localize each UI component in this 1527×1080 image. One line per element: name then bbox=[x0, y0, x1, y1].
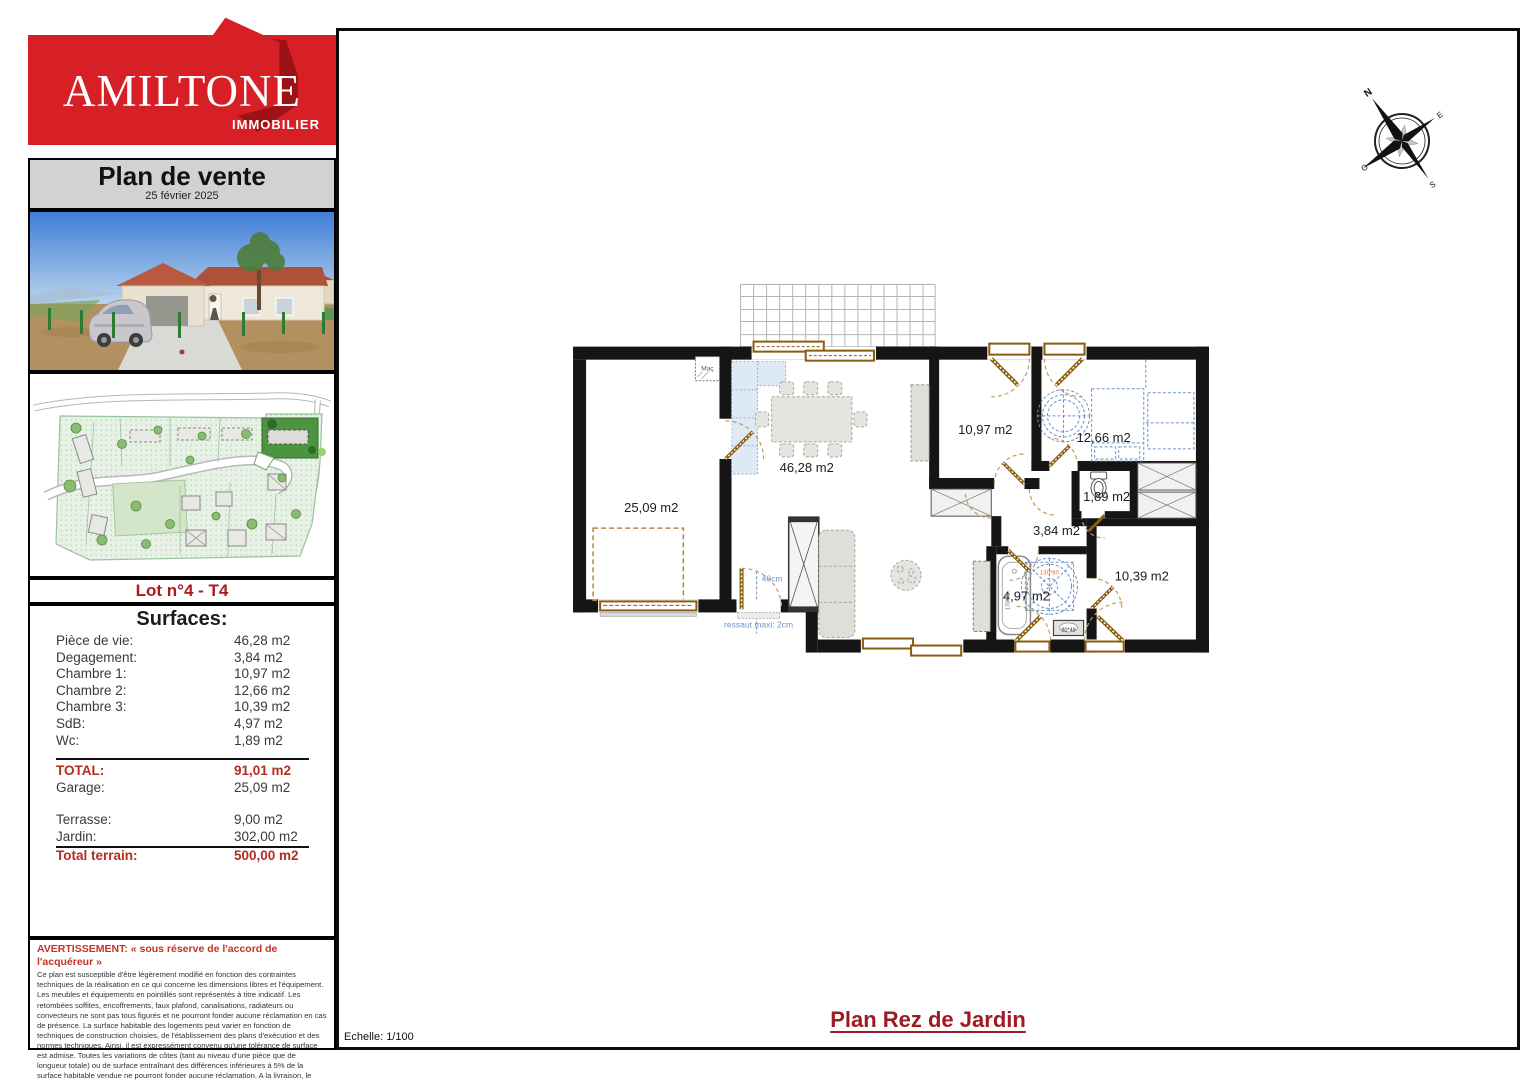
label-seuil: 40cm bbox=[762, 573, 783, 583]
label-degagement: 3,84 m2 bbox=[1033, 523, 1080, 538]
label-chambre1: 10,97 m2 bbox=[958, 422, 1012, 437]
surface-label: SdB: bbox=[56, 716, 234, 733]
label-piece-de-vie: 46,28 m2 bbox=[780, 460, 834, 475]
surface-label: Chambre 2: bbox=[56, 683, 234, 700]
label-chambre2: 12,66 m2 bbox=[1077, 430, 1131, 445]
floor-plan-drawing: 25,09 m2 46,28 m2 10,97 m2 12,66 m2 1,89… bbox=[560, 270, 1222, 672]
disclaimer-title: AVERTISSEMENT: « sous réserve de l'accor… bbox=[37, 943, 327, 969]
surface-row: Wc: 1,89 m2 bbox=[56, 733, 308, 750]
surface-value: 10,39 m2 bbox=[234, 699, 308, 716]
scale-note: Echelle: 1/100 bbox=[344, 1031, 414, 1043]
surface-value: 46,28 m2 bbox=[234, 633, 308, 650]
hall-closets bbox=[1138, 463, 1196, 518]
sofa bbox=[819, 530, 855, 637]
brand-tagline: IMMOBILIER bbox=[232, 117, 320, 132]
surface-label: Jardin: bbox=[56, 829, 234, 846]
living-shelf bbox=[911, 385, 929, 461]
compass-n: N bbox=[1362, 86, 1374, 99]
door-chambre1 bbox=[994, 454, 1024, 489]
surface-value: 25,09 m2 bbox=[234, 780, 308, 797]
floor-plan-panel: N E S O bbox=[336, 28, 1520, 1050]
compass-icon: N E S O bbox=[1337, 79, 1467, 204]
dining-set bbox=[756, 382, 867, 457]
floor-plan: 25,09 m2 46,28 m2 10,97 m2 12,66 m2 1,89… bbox=[560, 270, 1222, 672]
house-photo-render bbox=[30, 212, 334, 370]
tv-cabinet bbox=[973, 561, 990, 631]
disclaimer-paragraph-1: Ce plan est susceptible d'être légèremen… bbox=[37, 970, 327, 990]
house-photo bbox=[28, 210, 336, 372]
surface-label: Chambre 3: bbox=[56, 699, 234, 716]
surface-label: Degagement: bbox=[56, 650, 234, 667]
surface-value: 1,89 m2 bbox=[234, 733, 308, 750]
surfaces-title: Surfaces: bbox=[30, 608, 334, 631]
lot-title-bar: Lot n°4 - T4 bbox=[28, 578, 336, 604]
closet-chambre1 bbox=[931, 489, 991, 516]
label-maconnerie: Maç bbox=[701, 366, 714, 373]
label-douche: 130*80 bbox=[1040, 570, 1060, 576]
surface-label: Garage: bbox=[56, 780, 234, 797]
label-baignoire: 170*70 bbox=[1005, 593, 1011, 610]
disclaimer-panel: AVERTISSEMENT: « sous réserve de l'accor… bbox=[28, 938, 336, 1050]
lot-title: Lot n°4 - T4 bbox=[136, 581, 229, 600]
document-date: 25 février 2025 bbox=[30, 190, 334, 202]
door-chambre2 bbox=[1049, 438, 1077, 471]
entry-wardrobe bbox=[789, 517, 819, 611]
site-plan-render bbox=[30, 374, 334, 576]
surfaces-panel: Surfaces: Pièce de vie: 46,28 m2 Degagem… bbox=[28, 604, 336, 938]
surface-value: 302,00 m2 bbox=[234, 829, 309, 846]
surface-value: 4,97 m2 bbox=[234, 716, 308, 733]
surface-row: Pièce de vie: 46,28 m2 bbox=[56, 633, 308, 650]
hall-swing-arc bbox=[1029, 489, 1055, 515]
disclaimer-body: Ce plan est susceptible d'être légèremen… bbox=[37, 970, 327, 1080]
total-terrain-value: 500,00 m2 bbox=[234, 848, 308, 865]
total-terrain-row: Total terrain: 500,00 m2 bbox=[56, 848, 308, 865]
total-divider bbox=[56, 758, 309, 760]
plan-de-vente-document: AMILTONE IMMOBILIER Plan de vente 25 fév… bbox=[0, 0, 1527, 1080]
document-title-box: Plan de vente 25 février 2025 bbox=[28, 158, 336, 210]
surface-row: Chambre 3: 10,39 m2 bbox=[56, 699, 308, 716]
total-row: TOTAL: 91,01 m2 bbox=[56, 763, 308, 780]
jardin-row: Jardin: 302,00 m2 bbox=[56, 829, 309, 848]
terrace-grid bbox=[741, 284, 936, 346]
surface-label: Wc: bbox=[56, 733, 234, 750]
label-lavabo: 80*48 bbox=[1061, 627, 1075, 633]
label-ressaut: ressaut maxi: 2cm bbox=[724, 619, 793, 629]
total-terrain-label: Total terrain: bbox=[56, 848, 234, 865]
total-label: TOTAL: bbox=[56, 763, 234, 780]
surface-row: Chambre 2: 12,66 m2 bbox=[56, 683, 308, 700]
surface-value: 3,84 m2 bbox=[234, 650, 308, 667]
brand-name: AMILTONE bbox=[28, 65, 336, 117]
disclaimer-paragraph-2: Les meubles et équipements en pointillés… bbox=[37, 990, 327, 1080]
compass-e: E bbox=[1435, 110, 1445, 120]
label-chambre3: 10,39 m2 bbox=[1115, 568, 1169, 583]
surface-value: 9,00 m2 bbox=[234, 812, 308, 829]
logo-text-layer: AMILTONE IMMOBILIER bbox=[28, 35, 336, 145]
surface-row: Degagement: 3,84 m2 bbox=[56, 650, 308, 667]
document-title: Plan de vente bbox=[30, 161, 334, 192]
surface-label: Pièce de vie: bbox=[56, 633, 234, 650]
surface-value: 12,66 m2 bbox=[234, 683, 308, 700]
site-plan bbox=[28, 372, 336, 578]
surface-row: Chambre 1: 10,97 m2 bbox=[56, 666, 308, 683]
surface-row: SdB: 4,97 m2 bbox=[56, 716, 308, 733]
garage-row: Garage: 25,09 m2 bbox=[56, 780, 308, 797]
terrasse-row: Terrasse: 9,00 m2 bbox=[56, 812, 308, 829]
surface-label: Terrasse: bbox=[56, 812, 234, 829]
compass-s: S bbox=[1428, 180, 1438, 190]
plan-level-title: Plan Rez de Jardin bbox=[339, 1007, 1517, 1033]
joinery bbox=[598, 342, 1125, 656]
label-wc: 1,89 m2 bbox=[1083, 489, 1130, 504]
total-value: 91,01 m2 bbox=[234, 763, 308, 780]
car-slot bbox=[593, 528, 683, 600]
surface-label: Chambre 1: bbox=[56, 666, 234, 683]
side-table bbox=[891, 560, 921, 590]
agency-logo: AMILTONE IMMOBILIER bbox=[28, 14, 336, 146]
label-garage: 25,09 m2 bbox=[624, 500, 678, 515]
surface-value: 10,97 m2 bbox=[234, 666, 308, 683]
